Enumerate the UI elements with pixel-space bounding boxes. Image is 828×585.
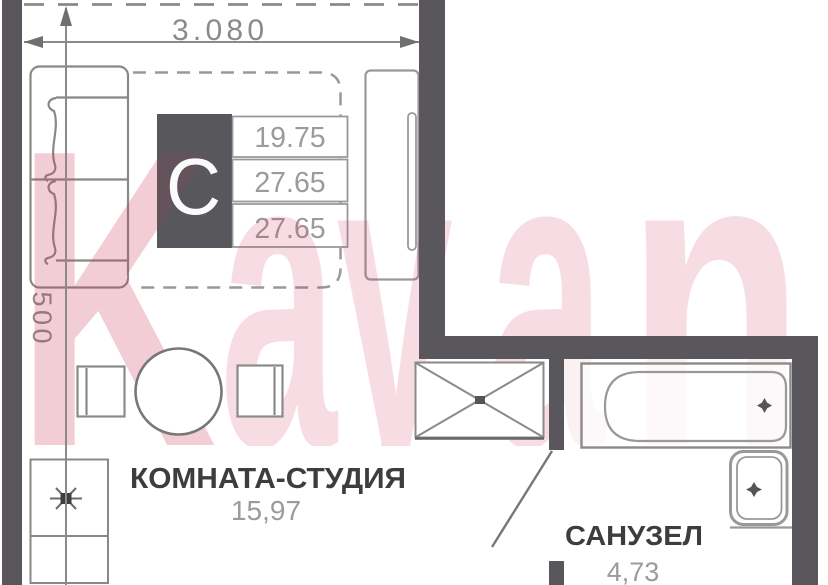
svg-text:С: С — [166, 142, 221, 231]
svg-text:15,97: 15,97 — [231, 495, 301, 526]
svg-text:3.080: 3.080 — [172, 14, 264, 47]
svg-text:САНУЗЕЛ: САНУЗЕЛ — [565, 520, 703, 551]
svg-text:КОМНАТА-СТУДИЯ: КОМНАТА-СТУДИЯ — [130, 463, 406, 495]
svg-text:4,73: 4,73 — [607, 557, 660, 585]
